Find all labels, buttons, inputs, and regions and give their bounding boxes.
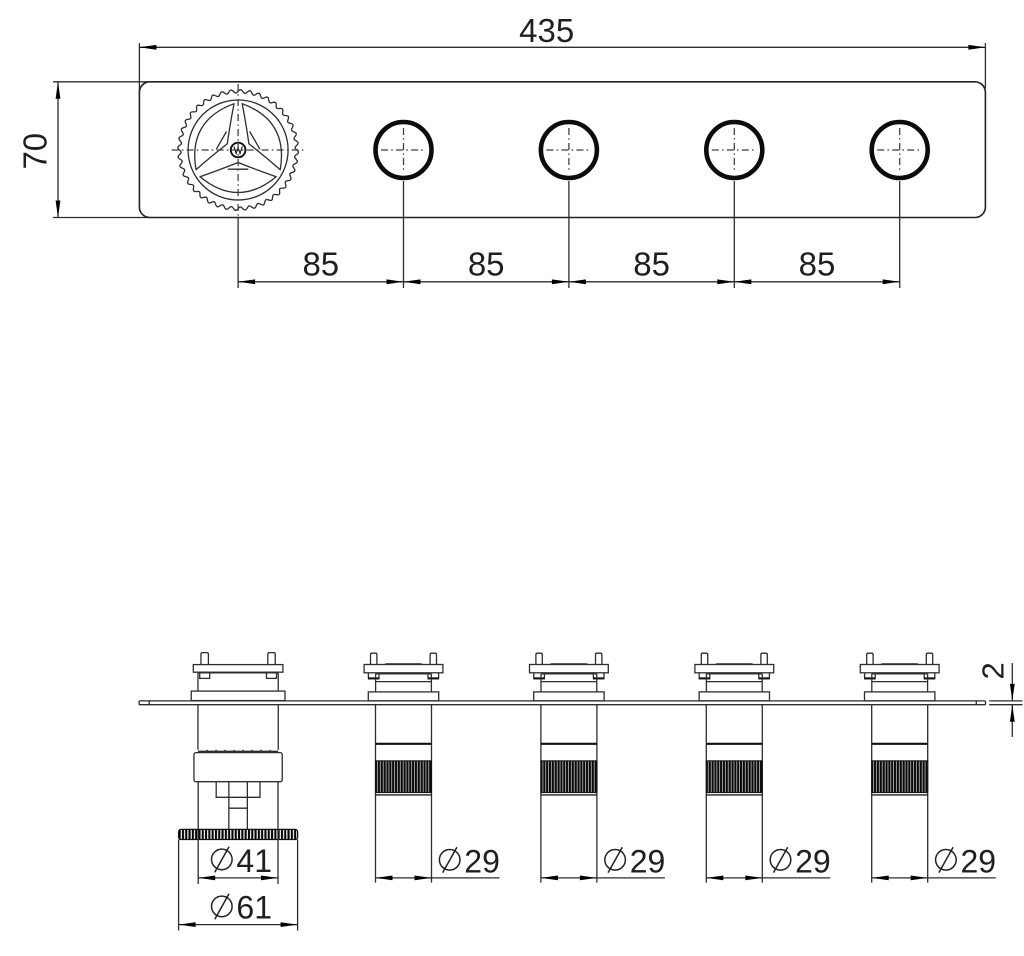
svg-text:70: 70 (17, 133, 54, 170)
svg-text:85: 85 (302, 245, 339, 282)
svg-text:85: 85 (633, 245, 670, 282)
svg-text:41: 41 (236, 843, 272, 879)
svg-text:85: 85 (468, 245, 505, 282)
svg-text:2: 2 (976, 662, 1011, 679)
svg-text:85: 85 (799, 245, 836, 282)
svg-text:61: 61 (236, 889, 272, 925)
svg-text:435: 435 (519, 12, 574, 49)
